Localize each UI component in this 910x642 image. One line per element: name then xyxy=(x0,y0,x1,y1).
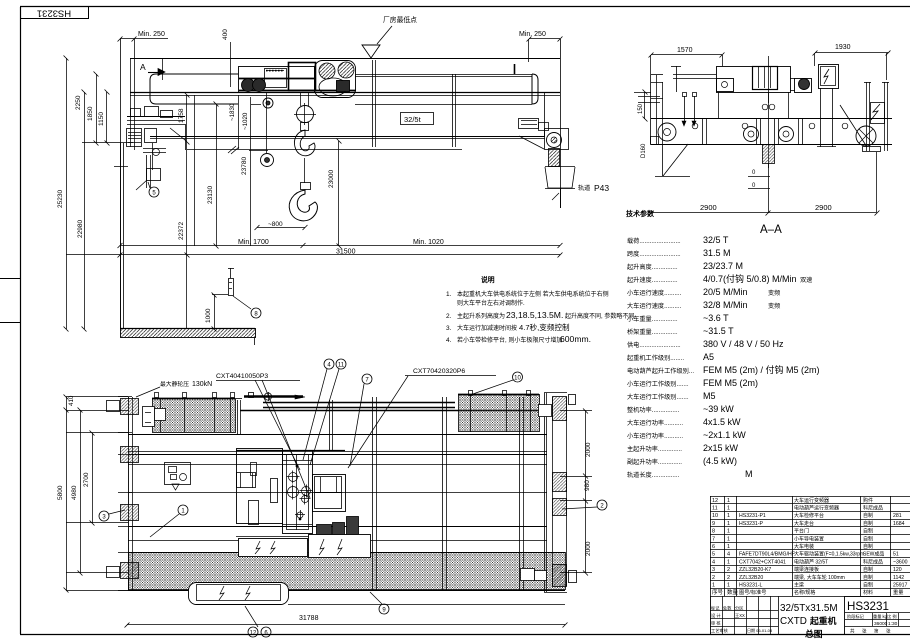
svg-text:1930: 1930 xyxy=(835,44,851,51)
svg-text:1: 1 xyxy=(727,513,730,519)
svg-text:2: 2 xyxy=(727,567,730,573)
svg-text:~3.6 T: ~3.6 T xyxy=(703,313,729,323)
svg-text:CXT70420320P6: CXT70420320P6 xyxy=(413,368,465,375)
svg-text:2700: 2700 xyxy=(83,472,90,487)
svg-text:电动葫芦运行变频器: 电动葫芦运行变频器 xyxy=(794,505,839,512)
svg-text:3.: 3. xyxy=(446,325,452,332)
svg-text:600mm.: 600mm. xyxy=(560,334,591,344)
svg-text:则大车平台左右对调制作.: 则大车平台左右对调制作. xyxy=(457,299,525,307)
svg-text:1: 1 xyxy=(727,529,730,535)
svg-text:自制: 自制 xyxy=(863,520,873,527)
svg-text:M: M xyxy=(745,469,753,479)
svg-text:12: 12 xyxy=(250,630,257,636)
svg-text:ZZL32B20-K7: ZZL32B20-K7 xyxy=(739,567,771,573)
svg-text:大车运行加减速时间按: 大车运行加减速时间按 xyxy=(457,324,517,332)
svg-text:起升速度...............: 起升速度............... xyxy=(627,276,678,284)
svg-text:购件: 购件 xyxy=(863,497,873,504)
svg-text:Min. 250: Min. 250 xyxy=(138,31,165,38)
svg-text:双速: 双速 xyxy=(800,276,812,284)
svg-text:2: 2 xyxy=(712,575,715,581)
svg-text:25917: 25917 xyxy=(893,583,908,589)
svg-text:4: 4 xyxy=(727,552,730,558)
svg-text:11: 11 xyxy=(338,362,345,368)
svg-text:5800: 5800 xyxy=(57,485,64,500)
svg-text:1000: 1000 xyxy=(205,308,212,323)
svg-text:小车重量...............: 小车重量............... xyxy=(627,315,678,323)
svg-text:自制: 自制 xyxy=(863,528,873,535)
svg-text:2.: 2. xyxy=(446,313,452,320)
svg-text:数量: 数量 xyxy=(727,588,739,596)
svg-text:小车运行工作级别.......: 小车运行工作级别....... xyxy=(627,380,689,388)
svg-text:CXTD: CXTD xyxy=(780,616,807,627)
svg-text:1570: 1570 xyxy=(677,47,693,54)
svg-text:HS3231-L: HS3231-L xyxy=(739,583,762,589)
svg-text:23/23.7 M: 23/23.7 M xyxy=(703,261,743,271)
svg-text:变频: 变频 xyxy=(768,302,780,310)
svg-text:22980: 22980 xyxy=(77,220,84,238)
svg-text:~2x1.1 kW: ~2x1.1 kW xyxy=(703,430,746,440)
svg-text:共: 共 xyxy=(850,628,855,635)
svg-text:130kN: 130kN xyxy=(192,381,212,388)
svg-text:10: 10 xyxy=(712,513,718,519)
svg-text:厂房最低点: 厂房最低点 xyxy=(383,15,417,24)
svg-text:FEM M5 (2m) / 付钩 M5 (2m): FEM M5 (2m) / 付钩 M5 (2m) xyxy=(703,364,820,375)
svg-text:名称/规格: 名称/规格 xyxy=(794,589,815,596)
svg-text:2: 2 xyxy=(727,575,730,581)
svg-text:平台门: 平台门 xyxy=(794,528,809,535)
svg-text:大车运行变频器: 大车运行变频器 xyxy=(794,497,829,504)
svg-text:~800: ~800 xyxy=(268,221,283,228)
svg-text:D160: D160 xyxy=(641,143,647,158)
svg-text:4.7秒,变频控制: 4.7秒,变频控制 xyxy=(519,322,570,332)
svg-text:1: 1 xyxy=(727,521,730,527)
svg-text:自制: 自制 xyxy=(863,582,873,589)
svg-text:科尼成品: 科尼成品 xyxy=(863,558,883,565)
svg-text:23780: 23780 xyxy=(241,157,248,175)
svg-text:起升高度...............: 起升高度............... xyxy=(627,263,678,271)
svg-text:A5: A5 xyxy=(703,352,714,362)
svg-text:第: 第 xyxy=(874,628,879,635)
svg-text:M5: M5 xyxy=(703,391,716,401)
svg-text:大车运行工作级别.......: 大车运行工作级别....... xyxy=(627,393,689,401)
svg-text:自制: 自制 xyxy=(863,512,873,519)
svg-text:32/5t: 32/5t xyxy=(404,115,422,124)
svg-text:王XX: 王XX xyxy=(735,613,745,618)
svg-text:31788: 31788 xyxy=(299,615,319,622)
svg-text:重量 kg: 重量 kg xyxy=(873,613,888,620)
svg-text:1758: 1758 xyxy=(178,108,185,123)
svg-text:科尼成品: 科尼成品 xyxy=(863,505,883,512)
svg-text:2900: 2900 xyxy=(815,203,832,212)
svg-text:31500: 31500 xyxy=(336,249,356,256)
svg-text:自制: 自制 xyxy=(863,566,873,573)
svg-text:主起升功率..............: 主起升功率.............. xyxy=(627,445,682,453)
svg-text:980: 980 xyxy=(584,480,591,491)
svg-text:~1020: ~1020 xyxy=(242,112,249,130)
svg-text:~39 kW: ~39 kW xyxy=(703,404,734,414)
svg-text:大车运行功率...........: 大车运行功率........... xyxy=(627,419,683,427)
svg-text:大车驱动装置(F=0,1.5kw,33rpm: 大车驱动装置(F=0,1.5kw,33rpm xyxy=(794,551,864,558)
svg-text:序号: 序号 xyxy=(712,588,724,596)
svg-text:自制: 自制 xyxy=(863,535,873,542)
svg-text:8: 8 xyxy=(712,529,715,535)
svg-text:4/0.7(付钩 5/0.8) M/Min: 4/0.7(付钩 5/0.8) M/Min xyxy=(703,273,797,284)
svg-text:150: 150 xyxy=(638,103,644,114)
svg-text:1: 1 xyxy=(727,498,730,504)
svg-text:1: 1 xyxy=(727,559,730,565)
svg-text:轨道: 轨道 xyxy=(578,184,590,192)
svg-text:380 V / 48 V / 50 Hz: 380 V / 48 V / 50 Hz xyxy=(703,339,784,349)
svg-text:10: 10 xyxy=(514,375,521,381)
svg-text:1: 1 xyxy=(727,544,730,550)
svg-text:SEW成品: SEW成品 xyxy=(863,551,884,558)
svg-text:Min. 1700: Min. 1700 xyxy=(238,239,269,246)
svg-text:主起升系列高度为: 主起升系列高度为 xyxy=(457,312,505,320)
svg-text:A–A: A–A xyxy=(760,224,782,236)
svg-text:轨道长度................: 轨道长度................ xyxy=(627,471,680,479)
svg-text:1: 1 xyxy=(727,536,730,542)
svg-text:23000: 23000 xyxy=(328,170,335,188)
svg-text:1850: 1850 xyxy=(87,106,94,121)
svg-text:~1830: ~1830 xyxy=(229,103,236,121)
svg-text:工艺审核: 工艺审核 xyxy=(711,627,729,634)
svg-text:阶段标记: 阶段标记 xyxy=(847,613,865,620)
svg-text:2x15 kW: 2x15 kW xyxy=(703,443,739,453)
svg-text:(4.5 kW): (4.5 kW) xyxy=(703,456,737,466)
svg-text:5: 5 xyxy=(712,552,715,558)
svg-text:起重机工作级别........: 起重机工作级别........ xyxy=(627,354,684,362)
svg-text:11: 11 xyxy=(712,506,718,512)
svg-text:图号/标准号: 图号/标准号 xyxy=(739,588,766,596)
svg-text:张: 张 xyxy=(862,628,867,635)
svg-text:大车运行速度..........: 大车运行速度.......... xyxy=(627,302,682,310)
svg-text:大车走台: 大车走台 xyxy=(794,520,814,527)
svg-text:1: 1 xyxy=(712,583,715,589)
svg-text:大车检修平台: 大车检修平台 xyxy=(794,512,824,519)
svg-text:自制: 自制 xyxy=(863,574,873,581)
svg-text:载荷........................: 载荷........................ xyxy=(627,237,681,245)
svg-text:120: 120 xyxy=(893,567,902,573)
svg-text:重量: 重量 xyxy=(893,588,903,596)
svg-text:本起重机大车供电系统位于左侧 若大车供电系统位于右侧: 本起重机大车供电系统位于左侧 若大车供电系统位于右侧 xyxy=(457,290,609,298)
svg-text:若小车带检修平台, 则小车极限尺寸增加: 若小车带检修平台, 则小车极限尺寸增加 xyxy=(457,336,562,344)
svg-text:HS3231-P1: HS3231-P1 xyxy=(739,513,766,519)
svg-text:4: 4 xyxy=(712,559,715,565)
svg-text:281: 281 xyxy=(893,513,902,519)
svg-text:分区: 分区 xyxy=(735,605,743,612)
svg-text:HS3231-P: HS3231-P xyxy=(739,521,763,527)
svg-text:端梁连接板: 端梁连接板 xyxy=(794,566,819,573)
svg-text:23,18.5,13.5M.: 23,18.5,13.5M. xyxy=(506,310,563,320)
svg-text:1684: 1684 xyxy=(893,521,905,527)
svg-text:材料: 材料 xyxy=(863,589,873,596)
svg-text:端梁, 大车车轮 100mm: 端梁, 大车车轮 100mm xyxy=(794,574,845,581)
svg-text:4x1.5 kW: 4x1.5 kW xyxy=(703,417,741,427)
svg-text:22372: 22372 xyxy=(178,222,185,240)
svg-text:最大静轮压: 最大静轮压 xyxy=(160,380,189,388)
svg-text:起升高度不同, 参数略不同: 起升高度不同, 参数略不同 xyxy=(565,312,634,320)
svg-text:供电........................: 供电........................ xyxy=(627,341,681,349)
svg-text:小车导电装置: 小车导电装置 xyxy=(794,535,824,542)
svg-text:设 计: 设 计 xyxy=(711,612,721,619)
svg-text:32/5 T: 32/5 T xyxy=(703,235,729,245)
svg-text:主梁: 主梁 xyxy=(794,582,804,589)
svg-text:自制: 自制 xyxy=(863,543,873,550)
svg-text:4.: 4. xyxy=(446,337,452,344)
svg-text:31.5 M: 31.5 M xyxy=(703,248,731,258)
svg-text:36000: 36000 xyxy=(874,621,888,627)
svg-text:副起升功率..............: 副起升功率.............. xyxy=(627,458,682,466)
svg-text:1.: 1. xyxy=(446,291,452,298)
svg-text:大车电装: 大车电装 xyxy=(794,543,814,550)
svg-text:ZZL32B20: ZZL32B20 xyxy=(739,575,763,581)
svg-text:400: 400 xyxy=(222,29,229,40)
svg-text:2000: 2000 xyxy=(585,541,592,556)
svg-text:1142: 1142 xyxy=(893,575,904,581)
svg-text:51: 51 xyxy=(893,552,899,558)
svg-text:1: 1 xyxy=(727,583,730,589)
svg-text:HS3231: HS3231 xyxy=(37,8,71,19)
svg-text:Min. 1020: Min. 1020 xyxy=(413,239,444,246)
svg-text:桥架重量...............: 桥架重量............... xyxy=(627,328,678,336)
svg-text:起重机: 起重机 xyxy=(809,615,837,626)
svg-text:小车运行功率...........: 小车运行功率........... xyxy=(627,432,683,440)
svg-text:CXT40410050P3: CXT40410050P3 xyxy=(216,373,268,380)
svg-text:FAFE7DT90L4/BMG/HF: FAFE7DT90L4/BMG/HF xyxy=(739,552,795,558)
svg-text:标记: 标记 xyxy=(711,605,720,612)
svg-text:电动葫芦起升工作级别...: 电动葫芦起升工作级别... xyxy=(627,367,694,375)
svg-text:7: 7 xyxy=(712,536,715,542)
svg-text:32/5Tx31.5M: 32/5Tx31.5M xyxy=(780,603,838,614)
svg-text:1:30: 1:30 xyxy=(888,621,898,627)
svg-text:电动葫芦 32/5T: 电动葫芦 32/5T xyxy=(794,558,828,565)
svg-text:FEM M5 (2m): FEM M5 (2m) xyxy=(703,378,758,388)
svg-text:4980: 4980 xyxy=(71,485,78,500)
svg-text:32/8 M/Min: 32/8 M/Min xyxy=(703,300,748,310)
svg-text:说明: 说明 xyxy=(481,275,495,284)
svg-text:整机功率................: 整机功率................ xyxy=(627,406,680,414)
svg-text:Min. 250: Min. 250 xyxy=(519,31,546,38)
svg-text:~3600: ~3600 xyxy=(893,559,908,565)
svg-text:处数: 处数 xyxy=(723,605,732,612)
svg-text:2900: 2900 xyxy=(700,203,717,212)
svg-text:审 核: 审 核 xyxy=(711,620,721,627)
svg-text:小车运行速度..........: 小车运行速度.......... xyxy=(627,289,682,297)
svg-text:12: 12 xyxy=(712,498,718,504)
svg-text:25230: 25230 xyxy=(57,190,64,208)
svg-text:HS3231: HS3231 xyxy=(847,600,889,613)
svg-text:9: 9 xyxy=(712,521,715,527)
svg-text:20/5 M/Min: 20/5 M/Min xyxy=(703,287,748,297)
svg-text:2000: 2000 xyxy=(585,442,592,457)
svg-text:CXT7042+CXT4041: CXT7042+CXT4041 xyxy=(739,559,786,565)
svg-text:日期 06-01-08: 日期 06-01-08 xyxy=(747,627,773,633)
svg-text:1: 1 xyxy=(727,506,730,512)
svg-text:2250: 2250 xyxy=(75,95,82,110)
svg-text:6: 6 xyxy=(712,544,715,550)
svg-text:变频: 变频 xyxy=(768,289,780,297)
svg-text:跨度........................: 跨度........................ xyxy=(627,250,681,258)
svg-text:张: 张 xyxy=(886,628,891,635)
svg-text:总图: 总图 xyxy=(805,628,823,639)
svg-text:A: A xyxy=(140,62,146,72)
svg-text:比 例: 比 例 xyxy=(887,613,897,620)
svg-text:1150: 1150 xyxy=(98,112,105,126)
svg-text:~31.5 T: ~31.5 T xyxy=(703,326,734,336)
svg-text:3: 3 xyxy=(712,567,715,573)
svg-text:23130: 23130 xyxy=(207,186,214,204)
svg-text:P43: P43 xyxy=(594,183,609,193)
svg-text:技术参数: 技术参数 xyxy=(626,209,655,218)
